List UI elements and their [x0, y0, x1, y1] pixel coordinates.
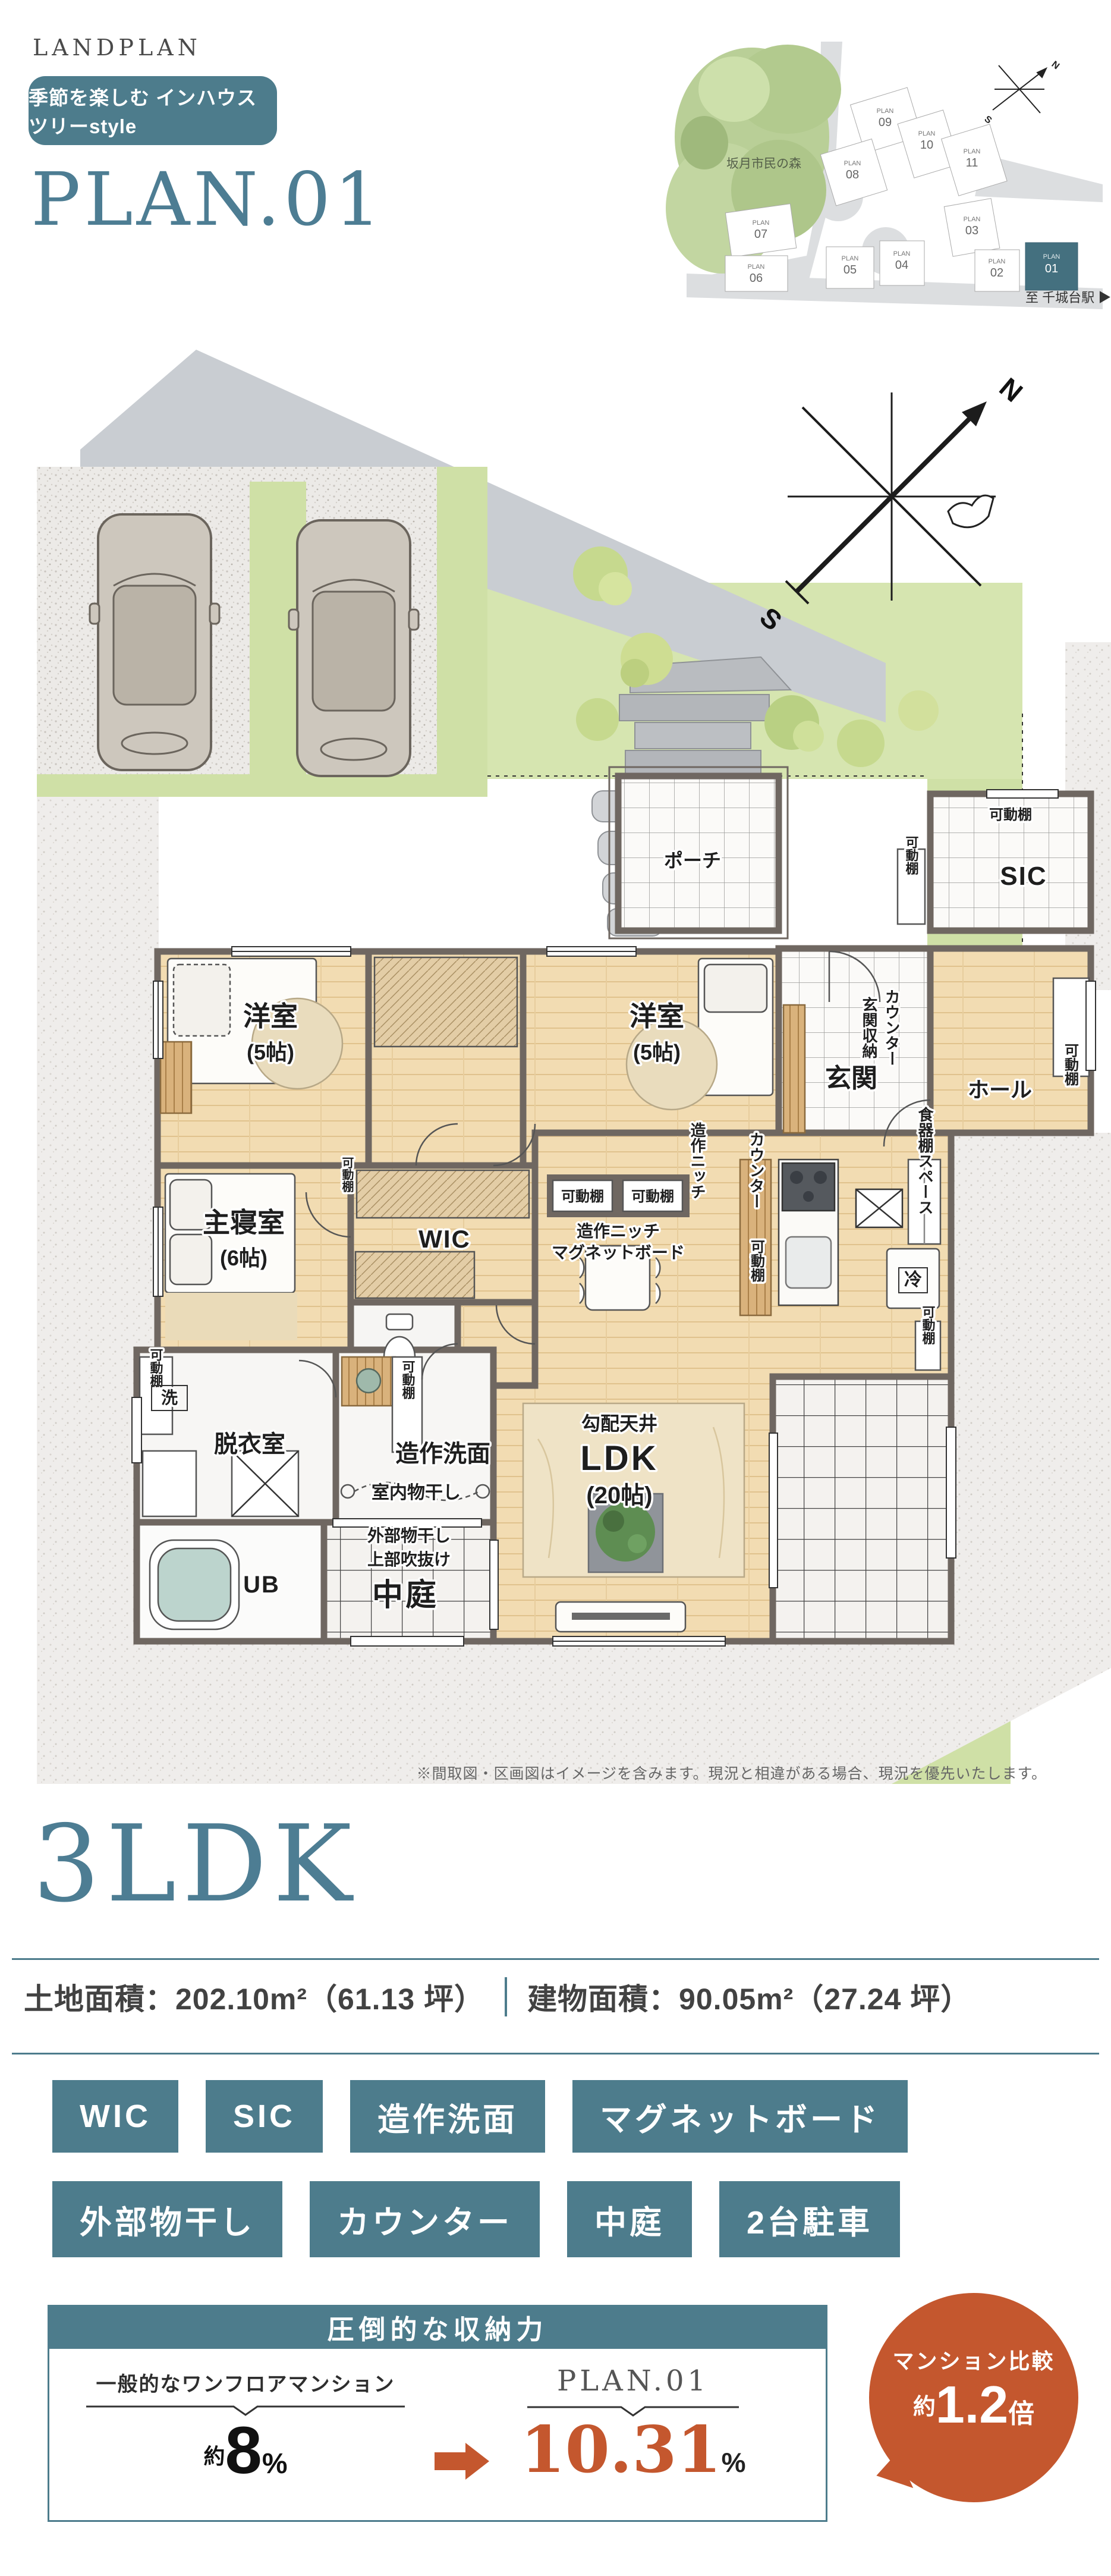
compass-n: N — [994, 372, 1029, 408]
svg-text:(5帖): (5帖) — [247, 1040, 294, 1064]
svg-text:可動棚: 可動棚 — [904, 835, 919, 875]
svg-text:04: 04 — [895, 259, 908, 272]
svg-text:10: 10 — [920, 139, 933, 152]
left-label: 一般的なワンフロアマンション — [79, 2368, 412, 2397]
right-label: PLAN.01 — [502, 2364, 764, 2398]
svg-text:03: 03 — [965, 224, 978, 237]
svg-text:PLAN: PLAN — [1043, 253, 1060, 260]
svg-text:洗: 洗 — [161, 1388, 178, 1407]
bubble-value: 約1.2倍 — [869, 2379, 1078, 2431]
svg-text:玄関: 玄関 — [825, 1064, 877, 1093]
feature-badges-row1: WIC SIC 造作洗面 マグネットボード — [52, 2080, 908, 2153]
concept-badge-label: 季節を楽しむ インハウスツリーstyle — [29, 82, 277, 139]
landplan-illustration: 坂月市民の森 PLAN PLAN PLAN PLAN — [651, 18, 1111, 318]
svg-text:(20帖): (20帖) — [586, 1482, 652, 1509]
floorplan-illustration: N S — [0, 333, 1111, 1784]
svg-text:SIC: SIC — [1000, 862, 1047, 891]
feature-badge-nakaniwa: 中庭 — [567, 2181, 692, 2257]
svg-text:可動棚: 可動棚 — [989, 806, 1032, 823]
comparison-left: 一般的なワンフロアマンション 約8% — [79, 2368, 412, 2484]
storage-header: 圧倒的な収納力 — [48, 2305, 827, 2349]
left-value: 約8% — [79, 2417, 412, 2484]
divider-bottom — [12, 2053, 1099, 2054]
svg-text:冷: 冷 — [904, 1270, 922, 1290]
flyer-page: 季節を楽しむ インハウスツリーstyle PLAN.01 坂月市民の森 — [0, 0, 1111, 2576]
feature-badge-senmen: 造作洗面 — [350, 2080, 545, 2153]
comparison-bubble: マンション比較 約1.2倍 — [869, 2293, 1078, 2502]
svg-text:可動棚: 可動棚 — [401, 1360, 416, 1400]
divider-top — [12, 1958, 1099, 1960]
svg-text:S: S — [983, 114, 994, 126]
svg-text:造作ニッチ: 造作ニッチ — [688, 1122, 706, 1199]
svg-text:PLAN: PLAN — [918, 130, 936, 137]
svg-text:可動棚: 可動棚 — [340, 1157, 354, 1193]
station-label: 至 千城台駅 ▶ — [1025, 290, 1111, 305]
landplan-title: LANDPLAN — [33, 34, 202, 61]
layout-title: 3LDK — [33, 1801, 358, 1928]
svg-text:ポーチ: ポーチ — [664, 850, 721, 871]
svg-text:可動棚: 可動棚 — [149, 1348, 163, 1388]
landplan-map: 坂月市民の森 PLAN PLAN PLAN PLAN — [651, 18, 1111, 318]
svg-text:(5帖): (5帖) — [633, 1040, 681, 1064]
feature-badge-magnet: マグネットボード — [572, 2080, 908, 2153]
building-area: 建物面積：90.05m²（27.24 坪） — [527, 1975, 971, 2018]
svg-text:可動棚: 可動棚 — [561, 1188, 604, 1205]
svg-text:WIC: WIC — [418, 1225, 471, 1253]
feature-badge-monohoshi: 外部物干し — [52, 2181, 282, 2257]
svg-text:マグネットボード: マグネットボード — [552, 1243, 685, 1262]
svg-text:05: 05 — [844, 263, 857, 277]
svg-text:上部吹抜け: 上部吹抜け — [367, 1550, 451, 1569]
svg-text:洋室: 洋室 — [243, 1001, 298, 1032]
svg-text:脱衣室: 脱衣室 — [214, 1431, 285, 1457]
svg-text:中庭: 中庭 — [372, 1578, 439, 1613]
svg-text:可動棚: 可動棚 — [921, 1305, 936, 1345]
svg-text:11: 11 — [966, 156, 978, 169]
bird-icon — [948, 495, 993, 527]
svg-text:06: 06 — [750, 272, 763, 285]
svg-text:02: 02 — [990, 266, 1003, 279]
svg-text:PLAN: PLAN — [964, 216, 981, 223]
svg-text:カウンター: カウンター — [747, 1132, 765, 1209]
svg-text:PLAN: PLAN — [842, 255, 859, 262]
svg-text:N: N — [1050, 59, 1062, 72]
feature-badges-row2: 外部物干し カウンター 中庭 2台駐車 — [52, 2181, 900, 2257]
svg-text:UB: UB — [243, 1572, 280, 1598]
concept-badge: 季節を楽しむ インハウスツリーstyle — [29, 76, 277, 145]
landplan-compass: N S — [983, 59, 1062, 126]
svg-text:PLAN: PLAN — [893, 250, 911, 257]
area-info: 土地面積：202.10m²（61.13 坪） 建物面積：90.05m²（27.2… — [24, 1975, 1100, 2018]
feature-badge-counter: カウンター — [310, 2181, 540, 2257]
svg-text:玄関収納: 玄関収納 — [860, 996, 878, 1058]
svg-text:カウンター: カウンター — [883, 989, 901, 1066]
svg-text:主寝室: 主寝室 — [203, 1207, 285, 1238]
terrace — [773, 1377, 951, 1641]
svg-text:PLAN: PLAN — [989, 258, 1006, 265]
arrow-icon — [435, 2443, 489, 2480]
svg-text:外部物干し: 外部物干し — [367, 1526, 451, 1545]
svg-text:ホール: ホール — [968, 1077, 1032, 1102]
svg-text:可動棚: 可動棚 — [631, 1188, 674, 1205]
svg-text:(6帖): (6帖) — [220, 1246, 267, 1270]
feature-badge-parking: 2台駐車 — [719, 2181, 900, 2257]
svg-text:08: 08 — [846, 168, 859, 181]
land-area: 土地面積：202.10m²（61.13 坪） — [24, 1975, 484, 2018]
svg-text:09: 09 — [879, 116, 892, 129]
storage-body: 一般的なワンフロアマンション 約8% PLAN.01 10.31% — [48, 2349, 827, 2522]
svg-text:造作洗面: 造作洗面 — [395, 1441, 490, 1467]
forest-label: 坂月市民の森 — [726, 157, 801, 171]
bubble-tail — [876, 2453, 923, 2500]
svg-text:PLAN: PLAN — [877, 108, 894, 115]
disclaimer-note: ※間取図・区画図はイメージを含みます。現況と相違がある場合、現況を優先いたします… — [416, 1762, 1047, 1783]
feature-badge-wic: WIC — [52, 2080, 178, 2153]
svg-text:LDK: LDK — [580, 1439, 658, 1478]
svg-text:PLAN: PLAN — [964, 148, 981, 155]
svg-text:可動棚: 可動棚 — [1062, 1043, 1079, 1086]
svg-text:PLAN: PLAN — [844, 160, 861, 167]
svg-text:勾配天井: 勾配天井 — [581, 1413, 657, 1434]
svg-text:食器棚スペース: 食器棚スペース — [916, 1106, 934, 1215]
svg-text:可動棚: 可動棚 — [748, 1239, 765, 1283]
right-value: 10.31% — [502, 2418, 764, 2482]
bubble-title: マンション比較 — [869, 2344, 1078, 2375]
svg-text:PLAN: PLAN — [748, 263, 765, 271]
svg-text:PLAN: PLAN — [753, 219, 770, 227]
storage-comparison: 圧倒的な収納力 一般的なワンフロアマンション 約8% PLAN.01 — [48, 2305, 827, 2522]
svg-text:造作ニッチ: 造作ニッチ — [577, 1222, 660, 1240]
area-divider — [505, 1977, 507, 2016]
svg-text:01: 01 — [1045, 262, 1058, 275]
svg-text:室内物干し: 室内物干し — [372, 1482, 461, 1503]
svg-text:07: 07 — [754, 228, 767, 241]
feature-badge-sic: SIC — [206, 2080, 323, 2153]
svg-text:洋室: 洋室 — [630, 1001, 684, 1032]
page-title: PLAN.01 — [31, 156, 385, 244]
comparison-right: PLAN.01 10.31% — [502, 2364, 764, 2482]
